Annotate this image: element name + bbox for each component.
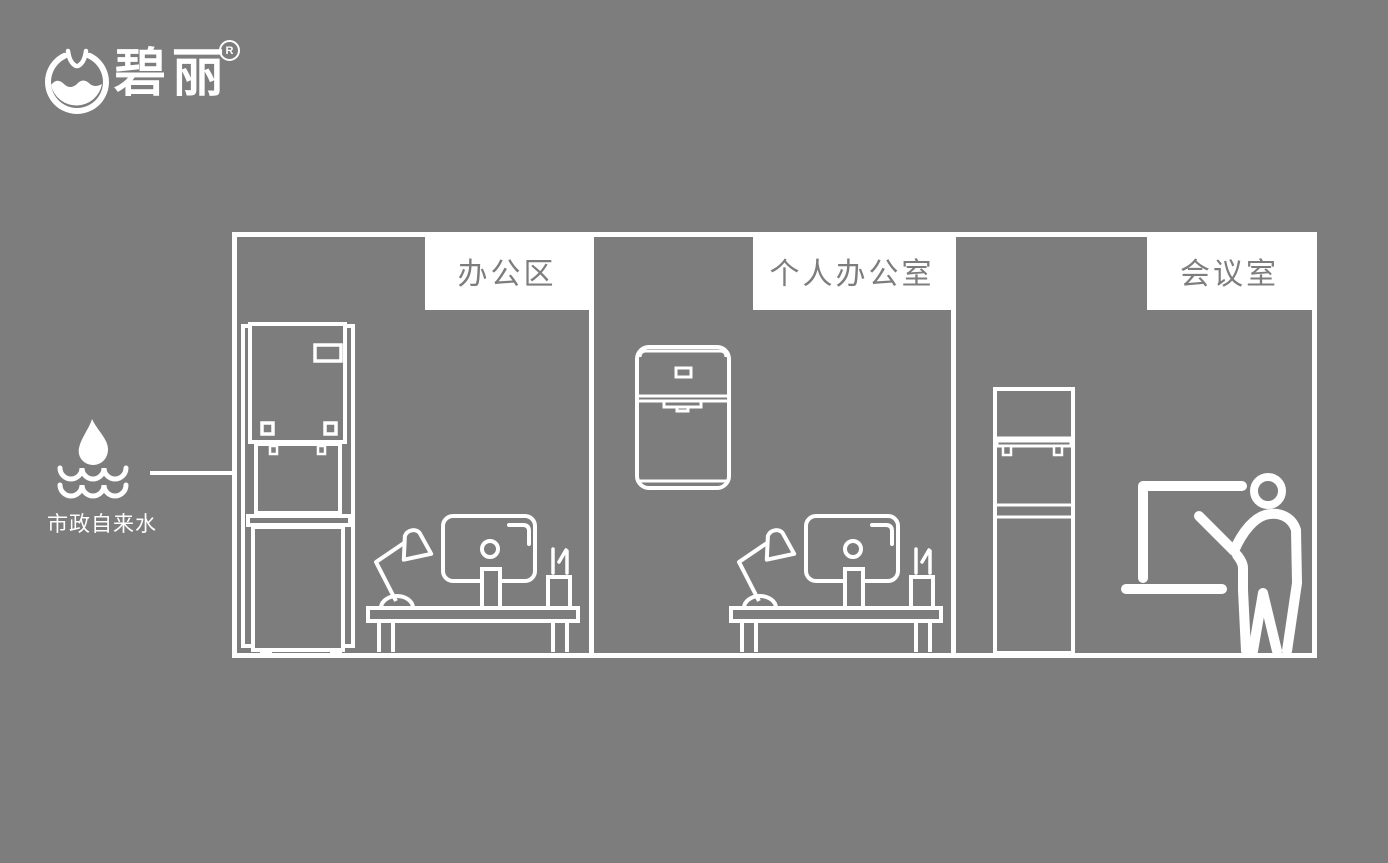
desk-legs bbox=[379, 622, 567, 652]
room-divider-wall bbox=[951, 237, 956, 653]
bili-logo-icon bbox=[40, 40, 125, 120]
desk-top bbox=[368, 608, 578, 621]
pen-holder-icon bbox=[909, 549, 935, 606]
vertical-dispenser-icon bbox=[988, 382, 1080, 660]
desktop-dispenser-icon bbox=[630, 340, 736, 495]
pen-holder-icon bbox=[546, 549, 572, 606]
room-label-text: 会议室 bbox=[1180, 249, 1279, 293]
supply-pipe-line bbox=[150, 471, 232, 475]
room-label-text: 办公区 bbox=[458, 249, 557, 293]
scenario-diagram: 碧丽 R 市政自来水 办公区 个人办公室 会议室 bbox=[0, 0, 1388, 863]
presenter-icon bbox=[1199, 477, 1297, 651]
water-drop-icon bbox=[79, 419, 108, 465]
floor-standing-dispenser-icon bbox=[238, 320, 360, 660]
brand-name: 碧丽 bbox=[114, 46, 230, 102]
room-label-office-area: 办公区 bbox=[425, 232, 589, 310]
desk-legs bbox=[742, 622, 930, 652]
desk-lamp-icon bbox=[376, 527, 431, 608]
room-divider-wall bbox=[589, 237, 594, 653]
desk-lamp-icon bbox=[739, 527, 794, 608]
monitor-icon bbox=[443, 516, 535, 608]
monitor-icon bbox=[806, 516, 898, 608]
room-label-text: 个人办公室 bbox=[770, 249, 935, 293]
presenter-at-whiteboard-icon bbox=[1120, 468, 1320, 658]
water-source-label: 市政自来水 bbox=[47, 508, 157, 538]
registered-trademark-icon: R bbox=[219, 40, 240, 61]
desk-top bbox=[731, 608, 941, 621]
office-desk bbox=[366, 505, 586, 655]
municipal-water-icon bbox=[55, 412, 165, 507]
room-label-private-office: 个人办公室 bbox=[753, 232, 951, 310]
office-desk bbox=[729, 505, 949, 655]
water-waves-icon bbox=[60, 468, 126, 496]
room-label-meeting-room: 会议室 bbox=[1147, 232, 1312, 310]
